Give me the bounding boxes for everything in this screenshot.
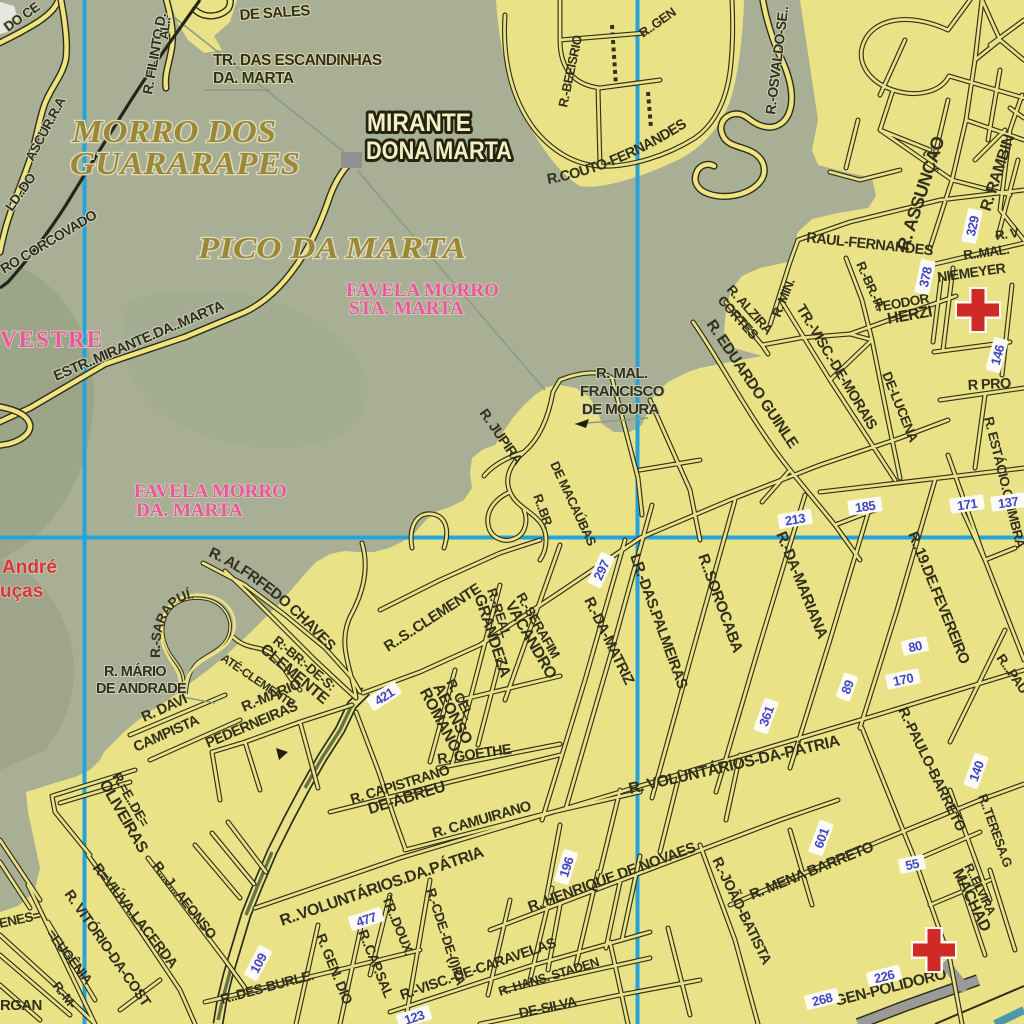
svg-text:DA. MARTA: DA. MARTA [213,70,294,87]
svg-text:R PRO: R PRO [967,376,1011,394]
svg-text:DE MOURA: DE MOURA [582,401,660,418]
svg-text:185: 185 [854,498,876,516]
svg-text:FRANCISCO: FRANCISCO [580,383,665,400]
svg-text:RGAN: RGAN [0,997,42,1014]
svg-text:uças: uças [0,581,43,602]
svg-text:André: André [2,557,57,578]
svg-text:R. MAL.: R. MAL. [596,365,648,382]
svg-text:R. MÁRIO: R. MÁRIO [104,663,166,680]
svg-text:GUARARAPES: GUARARAPES [70,145,300,181]
svg-text:FAVELA MORRO: FAVELA MORRO [134,481,287,502]
svg-text:DA. MARTA: DA. MARTA [136,500,243,521]
svg-text:MIRANTE: MIRANTE [367,109,471,137]
svg-text:TR. DAS ESCANDINHAS: TR. DAS ESCANDINHAS [213,52,382,69]
svg-text:MORRO DOS: MORRO DOS [71,113,276,149]
svg-text:STA. MARTA: STA. MARTA [349,298,464,319]
svg-text:137: 137 [997,494,1019,512]
svg-text:AL..: AL.. [156,17,173,41]
svg-text:DE ANDRADE: DE ANDRADE [96,681,187,697]
svg-text:VESTRE: VESTRE [0,327,104,352]
svg-text:DONA MARTA: DONA MARTA [366,137,512,165]
svg-text:PICO DA MARTA: PICO DA MARTA [197,230,466,265]
svg-text:171: 171 [956,496,978,514]
